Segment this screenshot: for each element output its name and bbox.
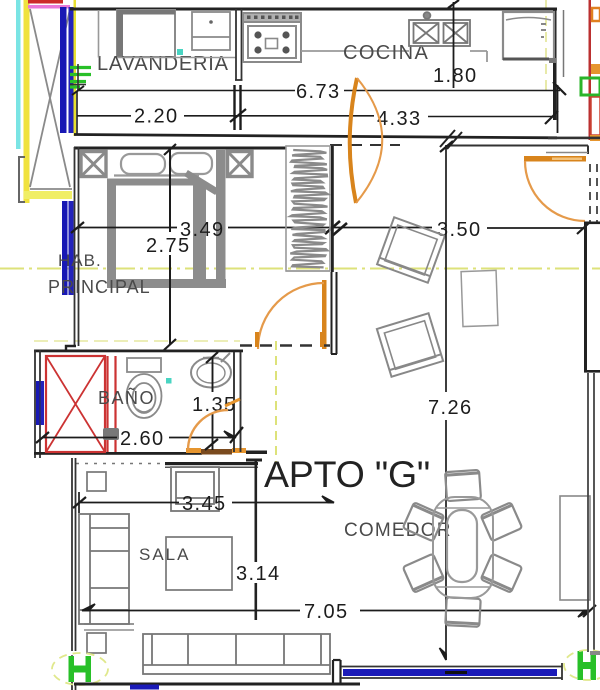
svg-text:7.26: 7.26 [428,397,473,419]
svg-text:HAB.: HAB. [58,251,102,270]
svg-text:2.60: 2.60 [120,428,165,450]
svg-text:4.33: 4.33 [377,108,422,130]
svg-text:APTO "G": APTO "G" [264,453,430,495]
svg-text:7.05: 7.05 [304,601,349,623]
svg-text:2.20: 2.20 [134,106,179,128]
svg-text:6.73: 6.73 [296,81,341,103]
svg-text:1.80: 1.80 [433,65,478,87]
svg-text:BAÑO: BAÑO [98,387,155,408]
svg-text:PRINCIPAL: PRINCIPAL [48,277,151,297]
svg-text:2.75: 2.75 [146,235,191,257]
svg-text:3.14: 3.14 [236,563,281,585]
svg-text:3.45: 3.45 [182,493,227,515]
svg-text:SALA: SALA [139,545,190,564]
svg-text:LAVANDERIA: LAVANDERIA [97,53,229,75]
